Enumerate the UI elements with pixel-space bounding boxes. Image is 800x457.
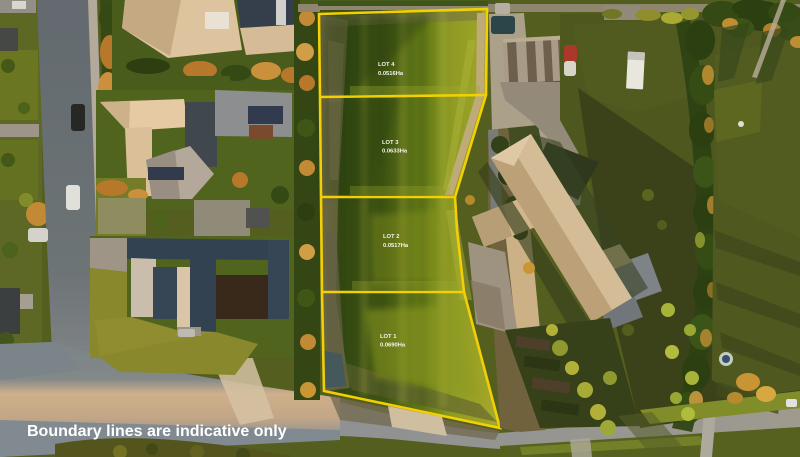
svg-text:Boundary lines are indicative: Boundary lines are indicative only bbox=[27, 423, 287, 440]
